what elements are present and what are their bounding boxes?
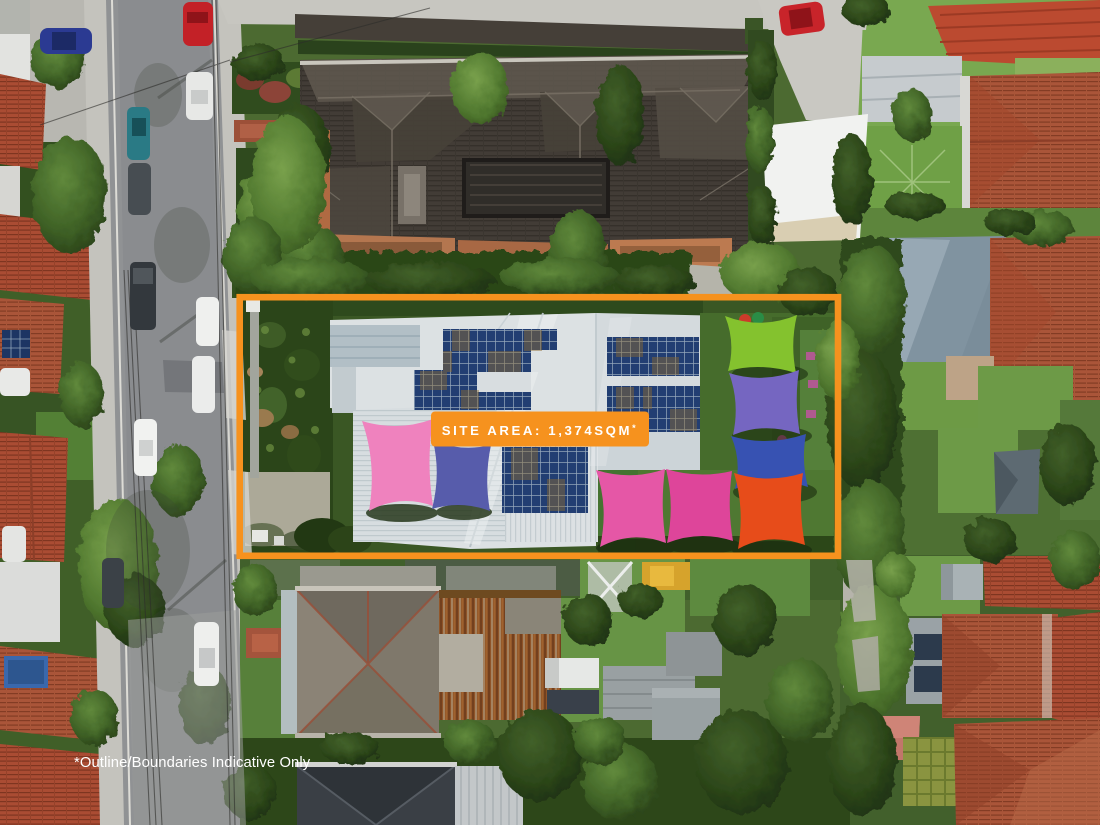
svg-text:SITE AREA: 1,374SQM*: SITE AREA: 1,374SQM*	[442, 423, 638, 438]
svg-text:*Outline/Boundaries Indicative: *Outline/Boundaries Indicative Only	[74, 755, 311, 771]
